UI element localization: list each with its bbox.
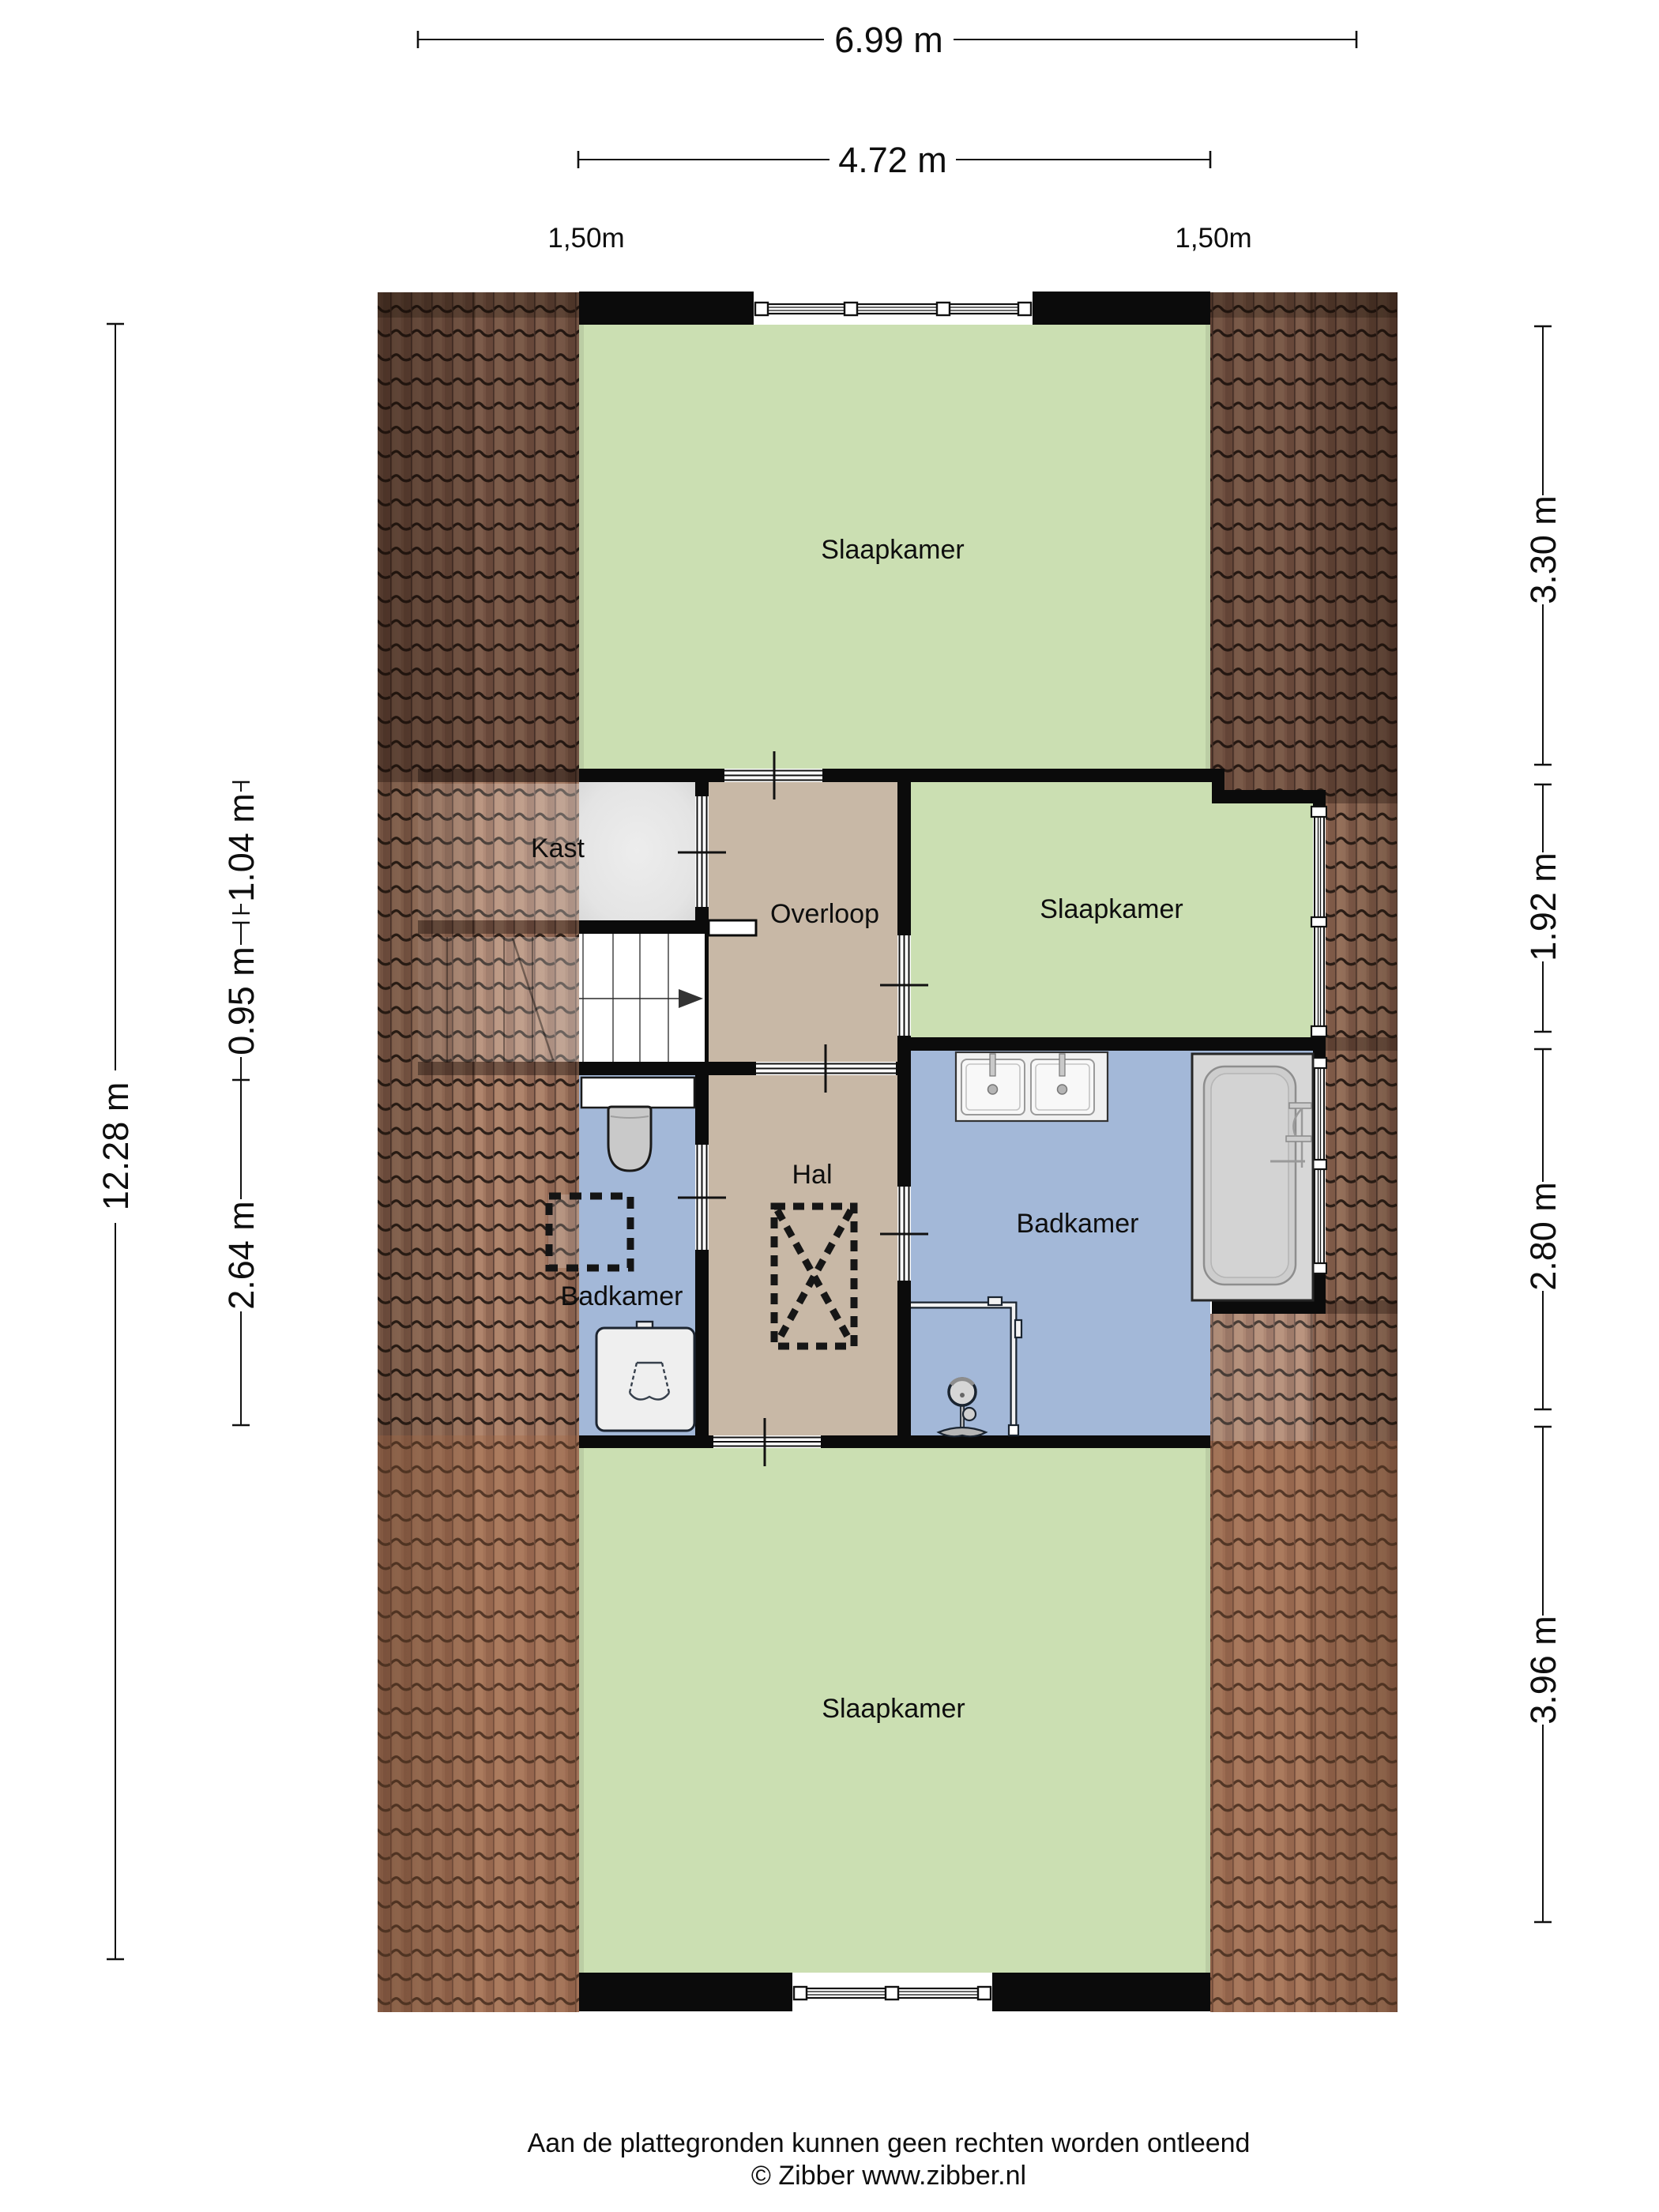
svg-text:4.72 m: 4.72 m bbox=[838, 140, 947, 180]
svg-text:Overloop: Overloop bbox=[770, 899, 879, 929]
svg-text:1,50m: 1,50m bbox=[547, 223, 624, 254]
svg-text:1.92 m: 1.92 m bbox=[1523, 852, 1563, 961]
svg-text:1,50m: 1,50m bbox=[1175, 223, 1251, 254]
svg-text:Badkamer: Badkamer bbox=[561, 1281, 683, 1311]
svg-text:6.99 m: 6.99 m bbox=[834, 20, 943, 60]
svg-text:3.96 m: 3.96 m bbox=[1523, 1616, 1563, 1725]
svg-text:Badkamer: Badkamer bbox=[1017, 1209, 1139, 1239]
svg-text:Kast: Kast bbox=[531, 833, 585, 863]
svg-text:2.80 m: 2.80 m bbox=[1523, 1182, 1563, 1291]
svg-text:© Zibber www.zibber.nl: © Zibber www.zibber.nl bbox=[751, 2161, 1026, 2191]
svg-text:3.30 m: 3.30 m bbox=[1523, 495, 1563, 604]
svg-text:1.04 m: 1.04 m bbox=[221, 793, 261, 902]
svg-text:12.28 m: 12.28 m bbox=[96, 1082, 136, 1211]
svg-text:Slaapkamer: Slaapkamer bbox=[1040, 894, 1183, 924]
svg-text:Slaapkamer: Slaapkamer bbox=[821, 535, 964, 565]
svg-text:Hal: Hal bbox=[792, 1160, 832, 1190]
svg-text:Slaapkamer: Slaapkamer bbox=[822, 1694, 965, 1724]
svg-text:2.64 m: 2.64 m bbox=[221, 1201, 261, 1310]
svg-text:0.95 m: 0.95 m bbox=[221, 946, 261, 1055]
svg-text:Aan de plattegronden kunnen ge: Aan de plattegronden kunnen geen rechten… bbox=[528, 2128, 1251, 2158]
